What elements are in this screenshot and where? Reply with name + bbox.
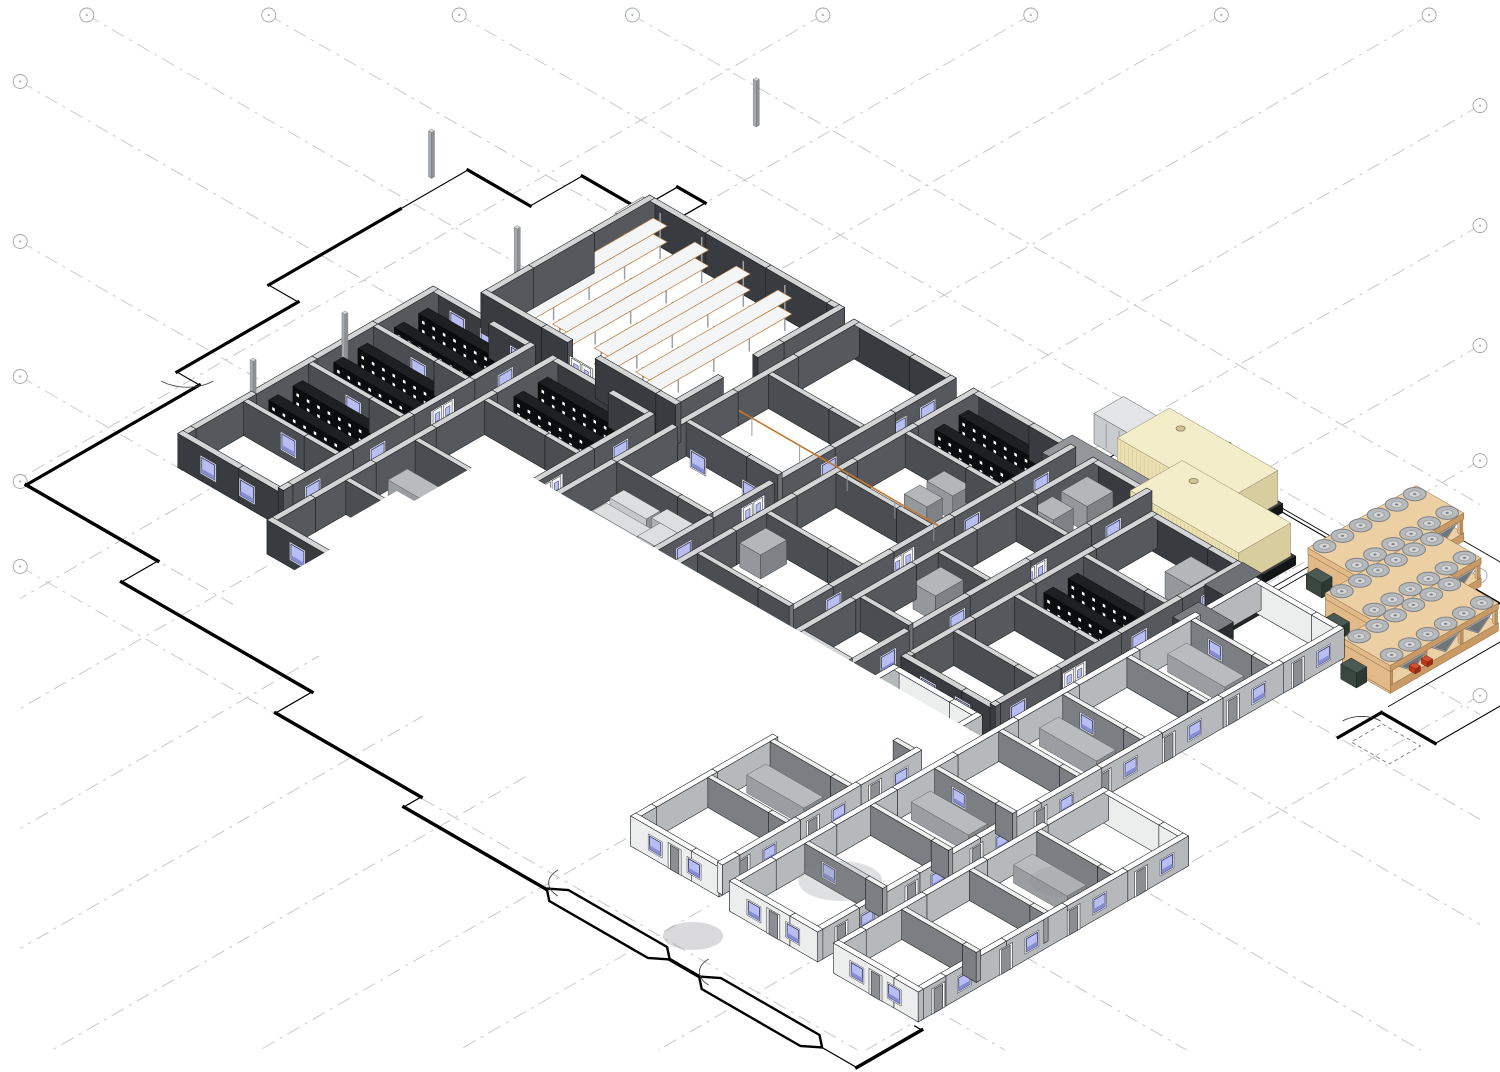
generator-unit-1 [1176,426,1185,431]
grid-bubble-dot [1479,224,1481,226]
site-boundary-line [468,170,530,206]
chiller-unit-2 [1340,590,1343,592]
grid-bubble-dot [19,565,21,567]
light-bay-3-door [1002,945,1011,974]
chiller-unit-3 [1376,625,1379,627]
chiller-unit-2 [1478,564,1481,580]
chiller-unit-3 [1394,614,1397,616]
chiller-unit-1 [1377,514,1380,516]
model [178,78,1499,1023]
grid-bubble-dot [19,480,21,482]
chiller-unit-3 [1390,654,1393,656]
light-bay-3-door [934,984,943,1013]
site-boundary-line [26,385,199,485]
grid-bubble-dot [19,80,21,82]
chiller-unit-2 [1445,567,1448,569]
site-column [514,227,517,275]
chiller-unit-1 [1413,493,1416,495]
chiller-unit-1 [1391,543,1394,545]
light-bay-1 [717,862,722,895]
grid-bubble-dot [1479,459,1481,461]
site-column [342,313,345,361]
light-bay-3 [976,950,980,983]
chiller-unit-2 [1430,538,1433,540]
chiller-unit-2 [1391,599,1394,601]
site-boundary-line [857,1030,922,1068]
chiller-unit-2 [1427,578,1430,580]
chiller-unit-3 [1462,612,1465,614]
grid-bubble-dot [268,14,270,16]
chiller-unit-2 [1463,557,1466,559]
light-bay-2 [818,929,823,962]
chiller-unit-2 [1412,549,1415,551]
site-boundary-line [177,372,200,385]
site-boundary-line [678,187,706,203]
grid-bubble-dot [19,240,21,242]
chiller-unit-1 [1373,554,1376,556]
chiller-unit-3 [1412,604,1415,606]
grid-bubble-dot [1030,14,1032,16]
chiller-unit-3 [1461,629,1464,645]
light-bay-2-door [1164,733,1173,762]
bim-isometric-view [0,0,1500,1072]
site-column [345,313,348,361]
entrance-vestibule-outline [699,977,822,1048]
floor-shadow [663,922,723,950]
site-boundary-line [822,1048,857,1068]
chiller-unit-3 [1408,644,1411,646]
grid-bubble-dot [1479,104,1481,106]
site-boundary-line [404,797,421,807]
chiller-unit-2 [1358,580,1361,582]
site-column [432,131,435,179]
light-bay-2-door [1229,696,1238,725]
entrance-vestibule-outline [547,889,670,960]
site-boundary-line [404,807,546,889]
chiller-unit-2 [1376,569,1379,571]
chiller-unit-1 [1341,535,1344,537]
grid-bubble-dot [822,14,824,16]
site-boundary-line [1435,655,1500,744]
site-boundary-line [276,692,312,713]
grid-bubble-dot [631,14,633,16]
grid-bubble-dot [1220,14,1222,16]
site-boundary-line [122,561,158,582]
site-column [756,79,759,127]
grid-bubble-dot [458,14,460,16]
site-boundary-line [915,1026,922,1030]
light-bay-3 [918,989,923,1022]
grid-bubble-dot [1428,14,1430,16]
site-boundary-line [670,960,699,977]
chiller-unit-3 [1430,594,1433,596]
chiller-unit-3 [1480,602,1483,604]
site-boundary-line [269,209,401,285]
grid-bubble-dot [1479,344,1481,346]
site-column [753,79,756,127]
light-bay-3-door [1069,906,1078,935]
isometric-model-canvas [0,0,1500,1072]
light-bay-3-door [871,971,880,1000]
site-boundary-line [276,713,422,797]
chiller-unit-1 [1460,519,1463,535]
light-bay-1-door [670,845,679,874]
chiller-unit-1 [1359,524,1362,526]
chiller-unit-3 [1426,633,1429,635]
site-boundary-line [269,285,298,302]
site-column [429,131,432,179]
light-bay-2-door [769,910,778,939]
chiller-unit-1 [1395,504,1398,506]
chiller-unit-1 [1409,533,1412,535]
chiller-unit-2 [1394,559,1397,561]
grid-bubble-dot [86,14,88,16]
chiller-unit-3 [1448,583,1451,585]
chiller-unit-3 [1444,623,1447,625]
chiller-unit-1 [1446,512,1449,514]
site-boundary-line [26,485,158,561]
site-boundary-line [177,302,298,372]
chiller-unit-2 [1409,588,1412,590]
chiller-unit-3 [1357,635,1360,637]
grid-bubble-dot [19,375,21,377]
chiller-unit-1 [1323,545,1326,547]
light-bay-2-door [1293,659,1302,688]
chiller-unit-1 [1427,522,1430,524]
chiller-unit-2 [1373,609,1376,611]
light-bay-3-door [1137,867,1146,896]
chiller-unit-1 [1355,564,1358,566]
generator-unit-2 [1189,478,1198,483]
chiller-unit-3 [1495,609,1498,625]
site-column [517,227,520,275]
chiller-unit-3 [1390,670,1393,686]
grid-bubble-dot [1479,694,1481,696]
